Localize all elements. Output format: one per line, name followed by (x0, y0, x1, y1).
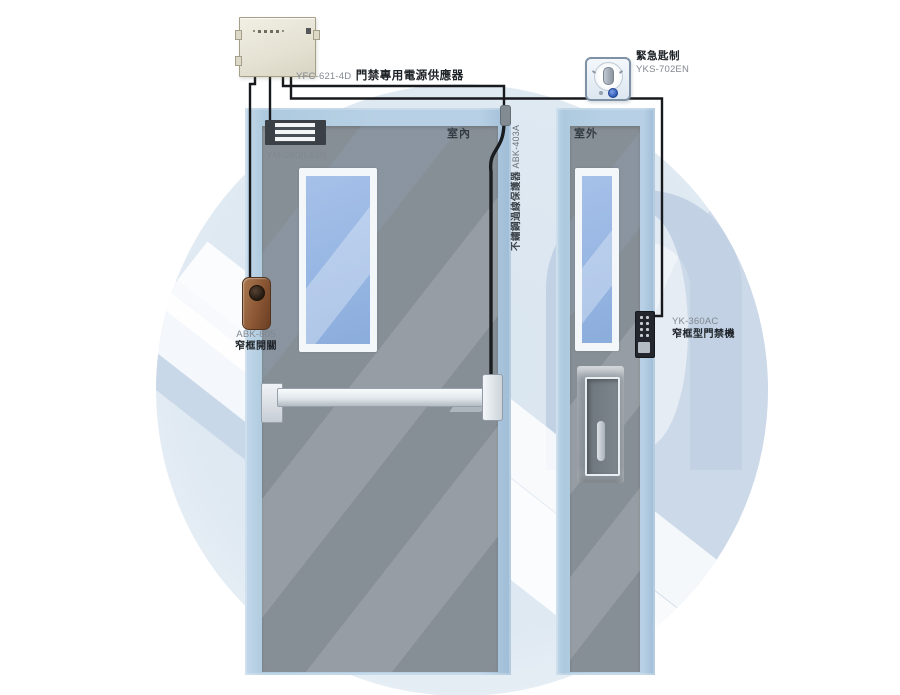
psu-mount-tab (235, 30, 242, 40)
exit-button-code: ABK-805 (224, 329, 288, 341)
maglock-code: YM-280(LED) (266, 150, 326, 161)
panic-bar-latch-housing (482, 374, 503, 421)
exit-button-name: 窄框開關 (224, 341, 288, 353)
wiring (0, 0, 900, 695)
diagram-canvas: YFC-621-4D 門禁專用電源供應器 YM-280(LED) 室內 室外 不… (0, 0, 900, 695)
keypad-card-area (638, 342, 650, 353)
exit-button-knob (249, 285, 265, 301)
exit-button-device (242, 277, 271, 330)
keypad-name: 窄框型門禁機 (672, 328, 735, 341)
power-supply-name: 門禁專用電源供應器 (356, 70, 464, 82)
reset-button (608, 88, 618, 98)
keypad-label: YK-360AC 窄框型門禁機 (672, 315, 735, 341)
psu-mount-tab (235, 56, 242, 66)
psu-vents (253, 29, 299, 33)
exit-button-label: ABK-805 窄框開關 (224, 329, 288, 353)
panic-bar (277, 388, 485, 407)
maglock-armature (275, 123, 315, 142)
emergency-key-switch (585, 57, 631, 101)
emergency-switch-label: 緊急匙制 YKS-702EN (636, 50, 689, 76)
cable-protector-label: 不鏽鋼過線保護器 ABK-403A (508, 121, 522, 251)
cable-protector-name: 不鏽鋼過線保護器 (511, 171, 522, 251)
cable-protector-code: ABK-403A (511, 125, 521, 169)
power-supply-code: YFC-621-4D (296, 71, 351, 82)
key-cylinder (603, 67, 614, 85)
maglock-label: YM-280(LED) (266, 145, 326, 163)
wire-to-keypad (291, 74, 662, 316)
power-supply-label: YFC-621-4D 門禁專用電源供應器 (296, 66, 464, 84)
status-led (599, 91, 603, 95)
outdoor-label: 室外 (574, 125, 598, 141)
emergency-switch-name: 緊急匙制 (636, 50, 689, 63)
keypad-device (635, 311, 655, 358)
flexible-cable-conduit (491, 122, 504, 377)
keypad-code: YK-360AC (672, 315, 735, 328)
indoor-label: 室內 (447, 125, 471, 141)
psu-terminal (306, 28, 311, 34)
emergency-switch-code: YKS-702EN (636, 63, 689, 76)
magnetic-lock (265, 120, 326, 145)
psu-mount-tab (313, 30, 320, 40)
wire-to-exit-button (250, 74, 255, 280)
